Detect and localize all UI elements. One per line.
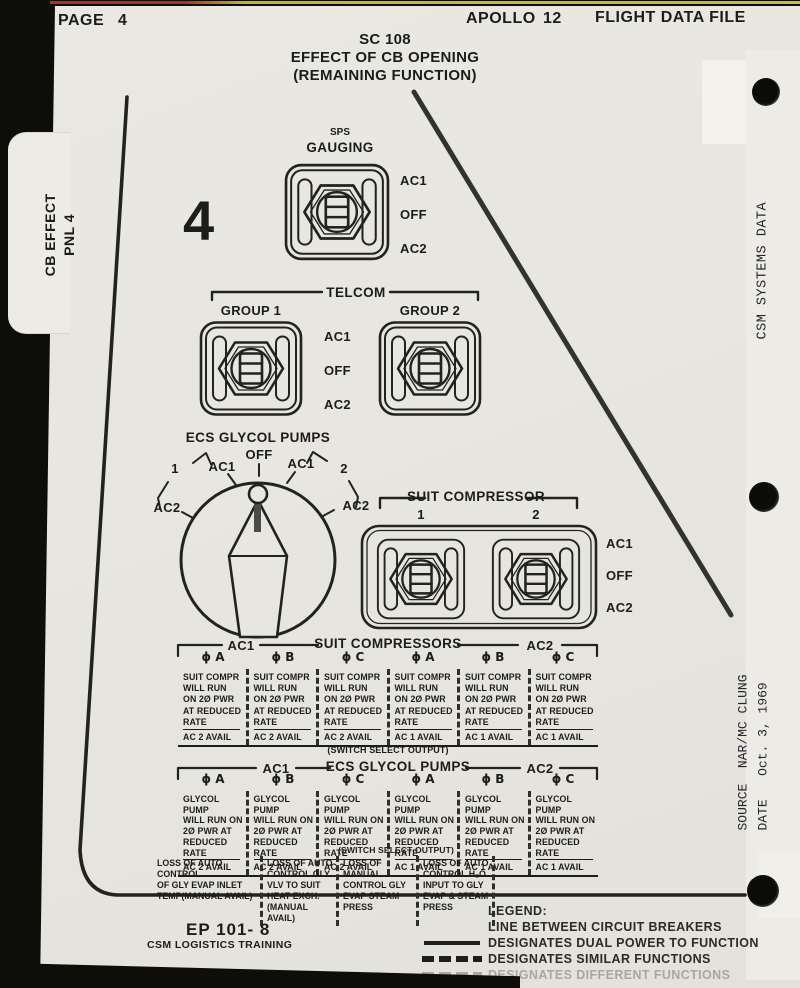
legend-faded-label: DESIGNATES DIFFERENT FUNCTIONS: [488, 968, 730, 984]
legend-solid-label: DESIGNATES DUAL POWER TO FUNCTION: [488, 936, 759, 952]
sps-system-label: SPS: [330, 127, 350, 140]
suit-switch2-label: 2: [532, 507, 540, 523]
mission-number: 12: [543, 9, 562, 29]
suit-table-phase-row: ϕ A ϕ B ϕ C ϕ A ϕ B ϕ C: [178, 650, 598, 669]
panel-number: 4: [183, 186, 214, 256]
switch-select-note-top: (SWITCH SELECT OUTPUT): [327, 745, 448, 756]
sps-position-off: OFF: [400, 207, 427, 223]
telcom-group1-label: GROUP 1: [221, 303, 281, 319]
glycol-group-2: 2: [340, 461, 348, 477]
phase-header: ϕ A: [178, 650, 248, 669]
table-cell: SUIT COMPR WILL RUN ON 2Ø PWR AT REDUCED…: [457, 669, 528, 745]
source-date-stamp: SOURCE NAR/MC CLUNG DATE Oct. 3, 1969: [734, 667, 773, 831]
phase-header: ϕ A: [178, 772, 248, 791]
sps-switch-name: GAUGING: [306, 140, 373, 157]
table-cell: GLYCOL PUMP WILL RUN ON 2Ø PWR AT REDUCE…: [528, 791, 599, 875]
punch-hole: [747, 875, 779, 907]
page-label: PAGE: [58, 11, 104, 31]
telcom-position-off: OFF: [324, 363, 351, 379]
punch-hole: [752, 78, 780, 106]
phase-header: ϕ C: [528, 772, 598, 791]
suit-compressor-panel: [362, 526, 596, 628]
glycol-rotary-dial: [181, 483, 335, 637]
legend-title: LEGEND:: [488, 904, 547, 920]
suit-position-off: OFF: [606, 568, 633, 584]
side-tab-label: CB EFFECT PNL 4: [41, 175, 79, 295]
glycol-position-ac2-left: AC2: [154, 500, 181, 516]
loss-note: LOSS OF MANUAL CONTROL GLY EVAP STEAM PR…: [336, 856, 416, 926]
phase-header: ϕ A: [388, 650, 458, 669]
suit-position-ac2: AC2: [606, 600, 633, 616]
title-line-1: EFFECT OF CB OPENING: [291, 49, 480, 68]
phase-header: ϕ C: [318, 772, 388, 791]
table-cell: SUIT COMPR WILL RUN ON 2Ø PWR AT REDUCED…: [387, 669, 458, 745]
csm-systems-data-stamp: CSM SYSTEMS DATA: [756, 210, 771, 340]
legend-solid-line-swatch: [424, 941, 480, 945]
glycol-position-ac1-right: AC1: [288, 456, 315, 472]
legend-dashed-line-swatch: [422, 956, 482, 962]
org-name: CSM LOGISTICS TRAINING: [147, 939, 292, 952]
phase-header: ϕ B: [248, 650, 318, 669]
sps-position-ac1: AC1: [400, 173, 427, 189]
page-number: 4: [118, 11, 127, 31]
loss-notes-row: LOSS OF AUTO CONTROL OF GLY EVAP INLET T…: [153, 856, 473, 926]
punch-hole: [749, 482, 779, 512]
title-line-2: (REMAINING FUNCTION): [293, 67, 476, 86]
telcom-title: TELCOM: [326, 285, 385, 302]
scanned-page: PAGE 4 APOLLO 12 FLIGHT DATA FILE SC 108…: [0, 0, 800, 988]
table-cell: SUIT COMPR WILL RUN ON 2Ø PWR AT REDUCED…: [528, 669, 599, 745]
sps-position-ac2: AC2: [400, 241, 427, 257]
program-name: APOLLO: [466, 9, 536, 29]
phase-header: ϕ A: [388, 772, 458, 791]
glycol-dial-title: ECS GLYCOL PUMPS: [186, 430, 330, 447]
phase-header: ϕ B: [458, 772, 528, 791]
switch-select-note-bottom: (SWITCH SELECT OUTPUT): [338, 845, 454, 856]
suit-position-ac1: AC1: [606, 536, 633, 552]
telcom-group2-label: GROUP 2: [400, 303, 460, 319]
table-cell: SUIT COMPR WILL RUN ON 2Ø PWR AT REDUCED…: [316, 669, 387, 745]
glycol-table-phase-row: ϕ A ϕ B ϕ C ϕ A ϕ B ϕ C: [178, 772, 598, 791]
spacecraft-id: SC 108: [359, 31, 411, 50]
telcom-group2-switch: [380, 323, 480, 415]
loss-note: LOSS OF AUTO CONTROL GLY VLV TO SUIT HEA…: [260, 856, 336, 926]
telcom-position-ac2: AC2: [324, 397, 351, 413]
table-cell: SUIT COMPR WILL RUN ON 2Ø PWR AT REDUCED…: [178, 669, 246, 745]
telcom-position-ac1: AC1: [324, 329, 351, 345]
suit-switch1-label: 1: [417, 507, 425, 523]
loss-note: LOSS OF AUTO CONTROL H₂O INPUT TO GLY EV…: [416, 856, 495, 926]
loss-note: LOSS OF AUTO CONTROL OF GLY EVAP INLET T…: [153, 856, 260, 926]
phase-header: ϕ C: [528, 650, 598, 669]
table-cell: SUIT COMPR WILL RUN ON 2Ø PWR AT REDUCED…: [246, 669, 317, 745]
legend-dashed-label: DESIGNATES SIMILAR FUNCTIONS: [488, 952, 711, 968]
suit-compressors-table: ϕ A ϕ B ϕ C ϕ A ϕ B ϕ C SUIT COMPR WILL …: [178, 650, 598, 747]
sps-gauging-switch: [286, 165, 388, 259]
document-title: FLIGHT DATA FILE: [595, 8, 746, 28]
telcom-group1-switch: [201, 323, 301, 415]
suit-compressor-title: SUIT COMPRESSOR: [407, 489, 545, 506]
phase-header: ϕ B: [458, 650, 528, 669]
glycol-position-ac2-right: AC2: [343, 498, 370, 514]
phase-header: ϕ C: [318, 650, 388, 669]
doc-id: EP 101- 8: [186, 919, 270, 940]
glycol-group-1: 1: [171, 461, 179, 477]
diagonal-connector-line: [414, 92, 731, 615]
glycol-position-off: OFF: [246, 447, 273, 463]
suit-table-body: SUIT COMPR WILL RUN ON 2Ø PWR AT REDUCED…: [178, 669, 598, 747]
legend-intro: LINE BETWEEN CIRCUIT BREAKERS: [488, 920, 722, 936]
phase-header: ϕ B: [248, 772, 318, 791]
glycol-position-ac1-left: AC1: [209, 459, 236, 475]
